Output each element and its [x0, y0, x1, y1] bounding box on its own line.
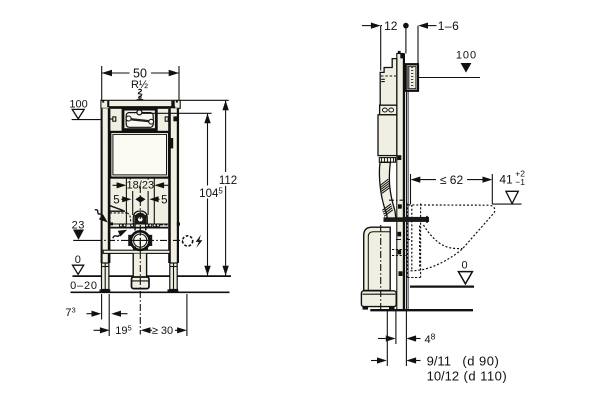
- svg-text:41: 41: [499, 173, 513, 187]
- svg-text:(d 90): (d 90): [462, 354, 499, 369]
- svg-text:12: 12: [384, 19, 398, 33]
- svg-text:0–20: 0–20: [70, 280, 98, 292]
- svg-text:100: 100: [456, 50, 477, 62]
- svg-text:112: 112: [219, 175, 237, 187]
- svg-text:1–6: 1–6: [438, 19, 460, 33]
- svg-text:10/12: 10/12: [427, 369, 460, 384]
- svg-text:0: 0: [462, 259, 468, 271]
- svg-text:5: 5: [161, 194, 167, 206]
- svg-text:≤ 62: ≤ 62: [440, 173, 464, 187]
- svg-text:5: 5: [113, 194, 119, 206]
- svg-text:0: 0: [75, 254, 81, 266]
- svg-text:−1: −1: [515, 177, 525, 187]
- svg-text:9/11: 9/11: [427, 354, 451, 369]
- svg-text:≥ 30: ≥ 30: [152, 325, 173, 337]
- svg-text:(d 110): (d 110): [464, 369, 508, 384]
